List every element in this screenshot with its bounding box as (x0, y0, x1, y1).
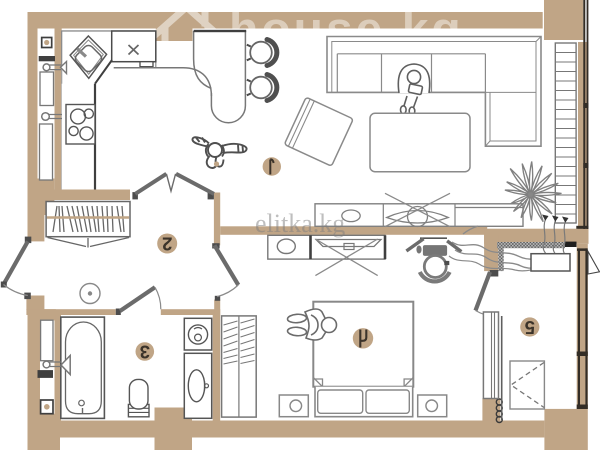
svg-text:elitka.kg: elitka.kg (255, 209, 345, 238)
svg-text:5: 5 (525, 317, 535, 338)
svg-text:3: 3 (140, 342, 150, 363)
svg-text:2: 2 (162, 234, 172, 255)
